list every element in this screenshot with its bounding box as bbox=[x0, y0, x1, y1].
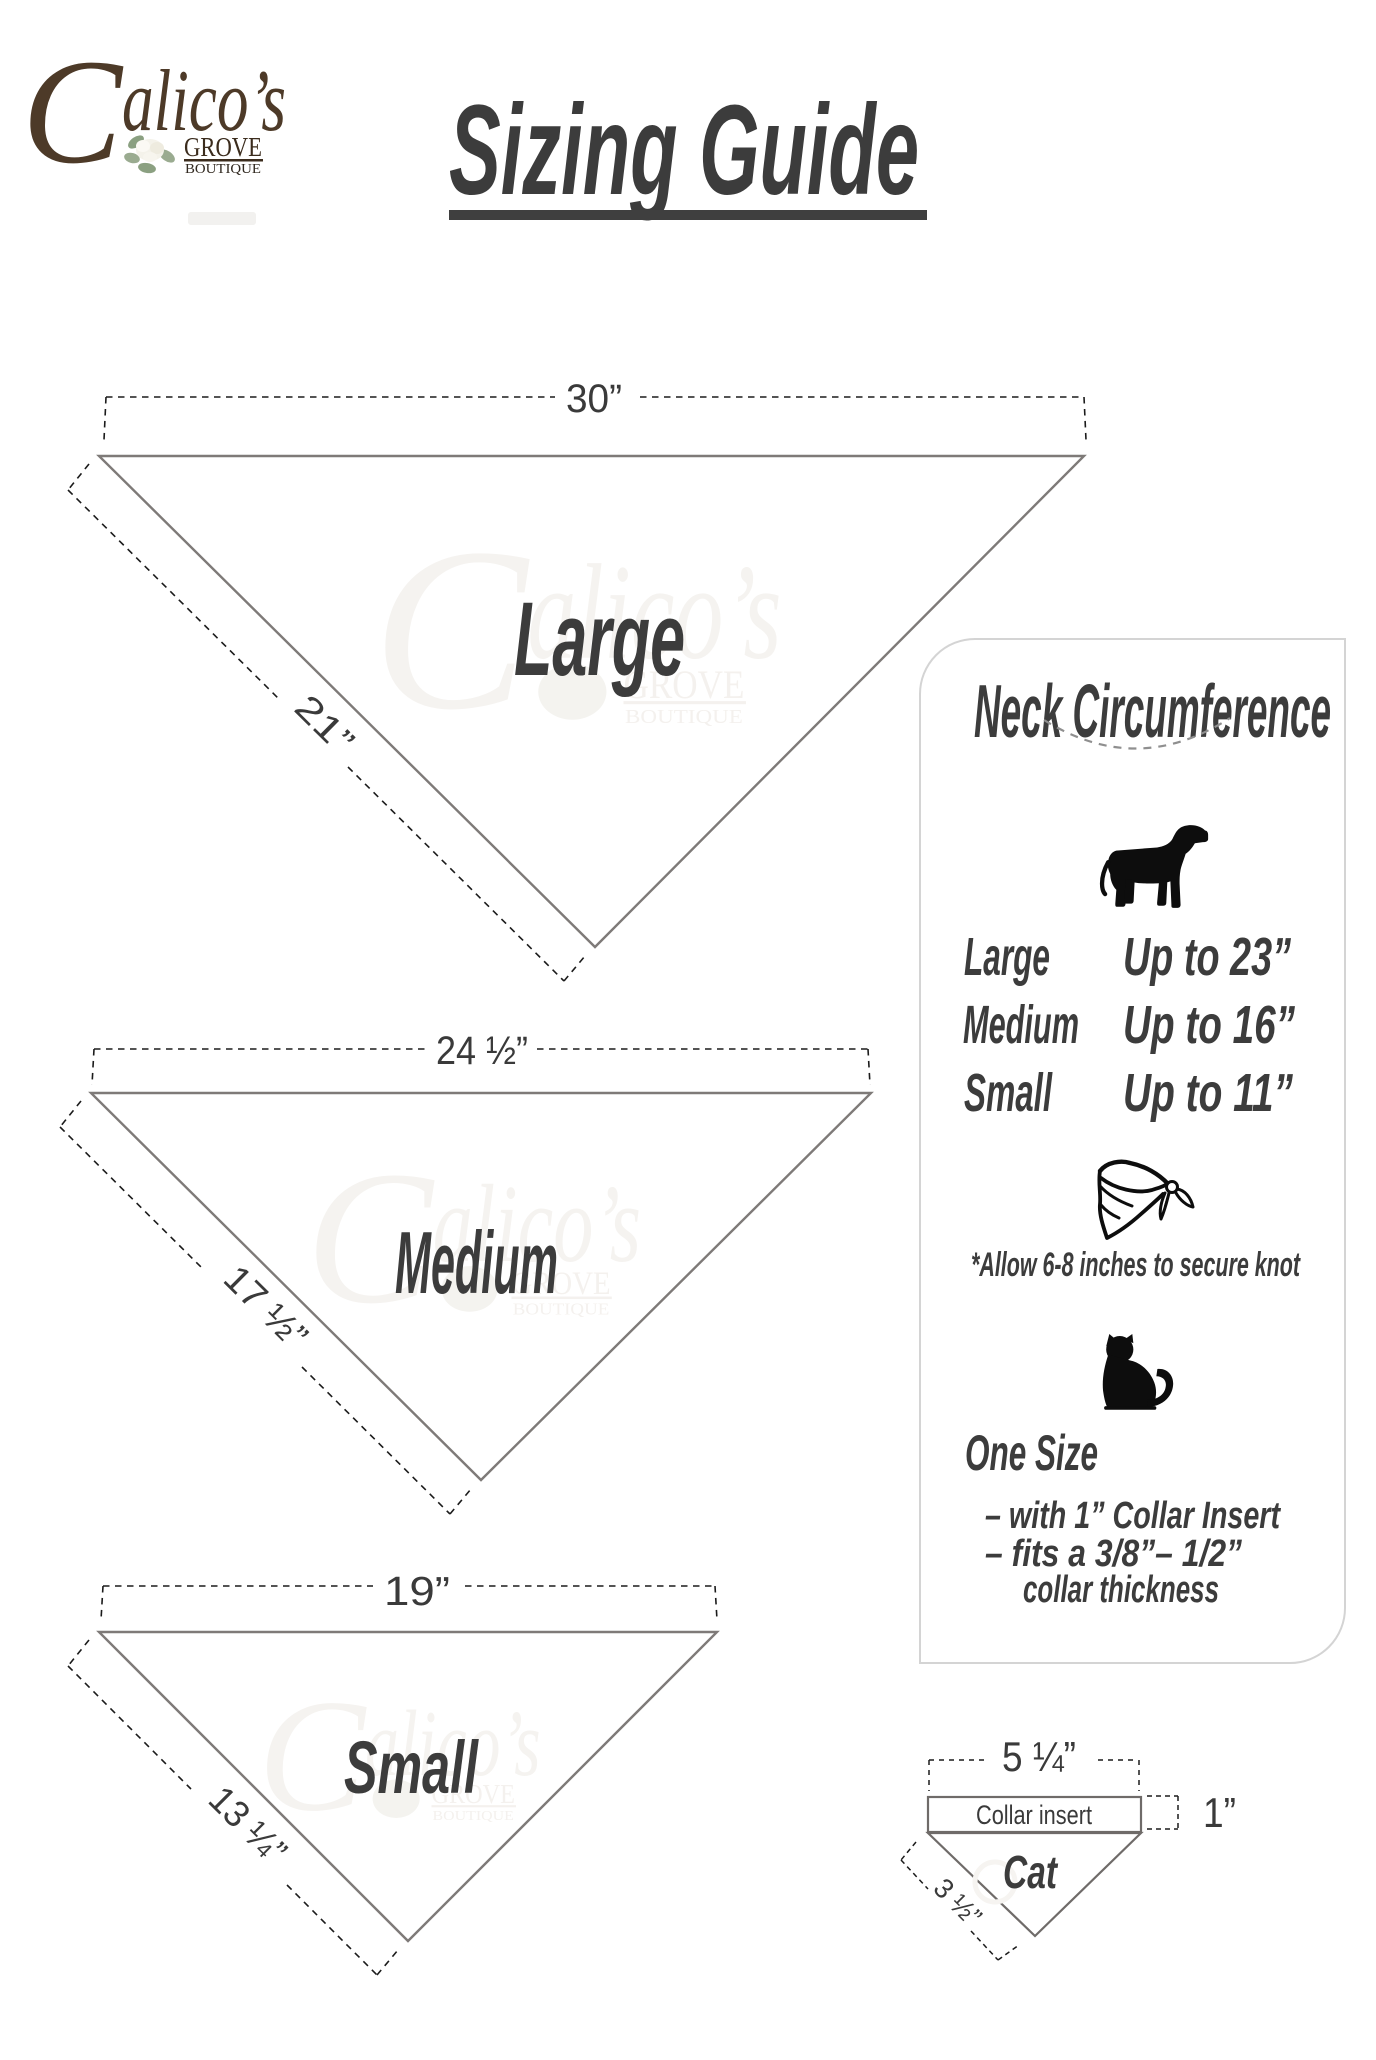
svg-text:BOUTIQUE: BOUTIQUE bbox=[185, 161, 261, 176]
svg-text:Medium: Medium bbox=[963, 995, 1079, 1055]
svg-text:1”: 1” bbox=[1203, 1789, 1236, 1836]
svg-text:Large: Large bbox=[514, 581, 685, 698]
svg-text:Large: Large bbox=[964, 927, 1050, 987]
svg-text:5 ¼”: 5 ¼” bbox=[1002, 1733, 1076, 1780]
svg-text:30”: 30” bbox=[566, 377, 622, 421]
svg-text:Up to 23”: Up to 23” bbox=[1123, 927, 1291, 987]
svg-text:19”: 19” bbox=[384, 1568, 450, 1614]
svg-text:One Size: One Size bbox=[965, 1425, 1098, 1481]
svg-text:– with 1” Collar Insert: – with 1” Collar Insert bbox=[985, 1495, 1281, 1537]
svg-text:*Allow 6-8 inches to secure kn: *Allow 6-8 inches to secure knot bbox=[971, 1246, 1301, 1284]
svg-text:Up to 16”: Up to 16” bbox=[1123, 995, 1295, 1055]
svg-text:Up to 11”: Up to 11” bbox=[1123, 1063, 1293, 1123]
svg-text:collar thickness: collar thickness bbox=[1023, 1569, 1219, 1611]
svg-text:C: C bbox=[22, 29, 124, 195]
svg-text:GROVE: GROVE bbox=[184, 132, 262, 162]
svg-text:Neck Circumference: Neck Circumference bbox=[974, 669, 1331, 753]
svg-text:Medium: Medium bbox=[395, 1213, 558, 1312]
svg-text:24 ½”: 24 ½” bbox=[436, 1029, 528, 1073]
svg-text:Small: Small bbox=[344, 1726, 479, 1809]
svg-text:Collar insert: Collar insert bbox=[976, 1800, 1092, 1830]
svg-text:Small: Small bbox=[964, 1063, 1053, 1123]
svg-text:Sizing Guide: Sizing Guide bbox=[449, 79, 919, 222]
svg-text:Cat: Cat bbox=[1003, 1846, 1058, 1898]
